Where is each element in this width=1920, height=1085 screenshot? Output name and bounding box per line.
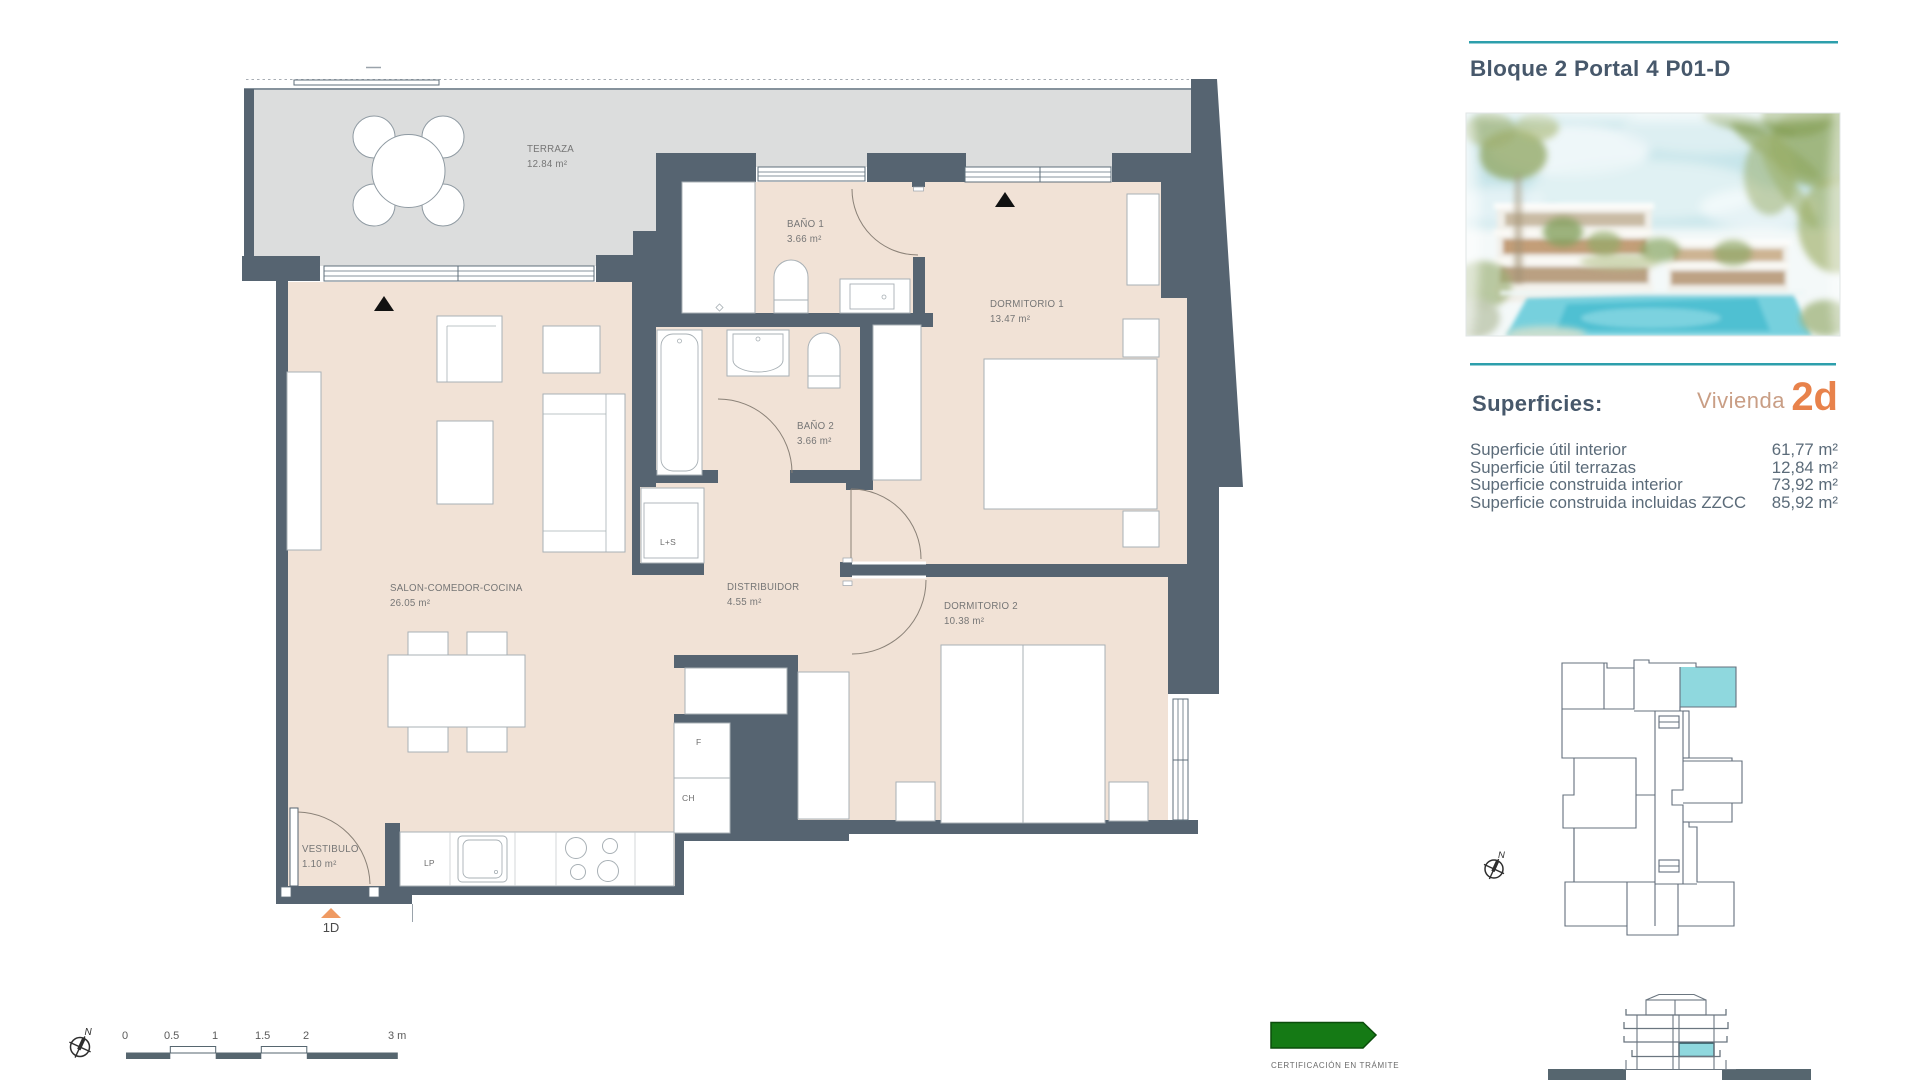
svg-text:Bloque 2 Portal 4 P01-D: Bloque 2 Portal 4 P01-D — [1470, 56, 1731, 81]
svg-text:SALON-COMEDOR-COCINA: SALON-COMEDOR-COCINA — [390, 583, 523, 594]
svg-text:BAÑO 1: BAÑO 1 — [787, 219, 824, 230]
svg-text:DORMITORIO 2: DORMITORIO 2 — [944, 601, 1018, 612]
svg-text:61,77 m²: 61,77 m² — [1772, 440, 1839, 459]
svg-text:1.5: 1.5 — [255, 1030, 270, 1042]
svg-text:N: N — [1498, 850, 1505, 861]
svg-text:Superficies:: Superficies: — [1472, 391, 1603, 416]
svg-text:F: F — [696, 737, 701, 747]
svg-text:4.55 m²: 4.55 m² — [727, 597, 762, 608]
svg-text:Superficie construida interior: Superficie construida interior — [1470, 475, 1683, 494]
svg-text:VESTIBULO: VESTIBULO — [302, 844, 359, 855]
svg-text:12.84 m²: 12.84 m² — [527, 159, 568, 170]
svg-text:73,92 m²: 73,92 m² — [1772, 475, 1839, 494]
svg-text:DISTRIBUIDOR: DISTRIBUIDOR — [727, 582, 799, 593]
svg-text:10.38 m²: 10.38 m² — [944, 616, 985, 627]
svg-text:Superficie útil interior: Superficie útil interior — [1470, 440, 1627, 459]
svg-text:0: 0 — [122, 1030, 128, 1042]
svg-text:LP: LP — [424, 858, 435, 868]
svg-text:L+S: L+S — [660, 537, 676, 547]
svg-text:13.47 m²: 13.47 m² — [990, 314, 1031, 325]
svg-text:CH: CH — [682, 793, 695, 803]
svg-text:1D: 1D — [323, 920, 340, 935]
svg-text:BAÑO 2: BAÑO 2 — [797, 421, 834, 432]
svg-text:2d: 2d — [1791, 375, 1838, 419]
svg-text:3.66 m²: 3.66 m² — [787, 234, 822, 245]
svg-text:1.10 m²: 1.10 m² — [302, 859, 337, 870]
svg-text:Vivienda: Vivienda — [1697, 388, 1785, 413]
svg-text:N: N — [85, 1027, 93, 1038]
svg-text:3 m: 3 m — [388, 1030, 406, 1042]
svg-text:DORMITORIO 1: DORMITORIO 1 — [990, 299, 1064, 310]
svg-text:2: 2 — [303, 1030, 309, 1042]
svg-text:26.05 m²: 26.05 m² — [390, 598, 431, 609]
svg-text:1: 1 — [212, 1030, 218, 1042]
svg-text:3.66 m²: 3.66 m² — [797, 436, 832, 447]
svg-text:TERRAZA: TERRAZA — [527, 144, 574, 155]
svg-text:0.5: 0.5 — [164, 1030, 179, 1042]
svg-text:85,92 m²: 85,92 m² — [1772, 493, 1839, 512]
svg-text:CERTIFICACIÓN EN TRÁMITE: CERTIFICACIÓN EN TRÁMITE — [1271, 1061, 1399, 1070]
svg-text:Superficie construida incluida: Superficie construida incluidas ZZCC — [1470, 493, 1746, 512]
